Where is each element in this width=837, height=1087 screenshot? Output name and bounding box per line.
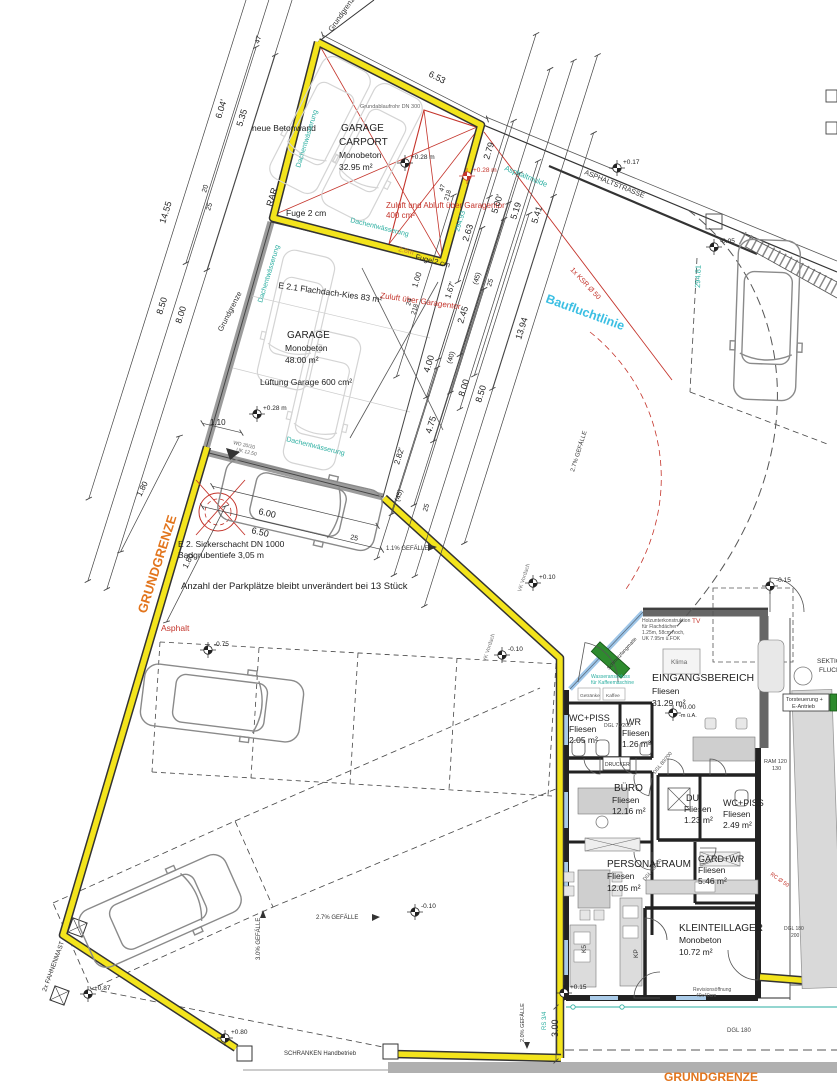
annotation-label: 200 — [791, 933, 800, 939]
door-arc — [668, 759, 684, 775]
annotation-label: Fliesen — [622, 728, 650, 738]
car-body — [74, 850, 245, 972]
annotation-label: Fliesen — [652, 686, 680, 696]
annotation-label: 40x40cm — [696, 993, 716, 999]
annotation-label: RAM 120 — [764, 759, 787, 765]
car-mirror — [193, 927, 203, 935]
plan-rect — [623, 926, 638, 938]
annotation-label: 1.00 — [410, 271, 423, 289]
level-marker: -0.10 — [494, 646, 523, 663]
annotation-label: 8.00 — [173, 305, 188, 325]
marker-quadrant — [415, 912, 419, 916]
annotation-label: 10.72 m² — [679, 947, 713, 957]
plan-rect — [574, 932, 590, 944]
plan-circle — [571, 1005, 575, 1009]
plan-rect — [826, 90, 837, 102]
annotation-label: WC+PISS — [723, 798, 764, 808]
annotation-label: 2.0% GEFÄLLE — [519, 1003, 526, 1042]
annotation-label: 25 — [422, 503, 431, 513]
annotation-label: BÜRO — [614, 782, 643, 794]
plan-rect-group — [388, 1062, 837, 1073]
annotation-label: KLEINTEILLAGER — [679, 923, 763, 934]
car-mirror — [286, 411, 292, 419]
annotation-label: 14.55 — [157, 200, 173, 224]
marker-label: +0.87 — [94, 985, 111, 992]
annotation-label: Asphaltmulde — [503, 164, 549, 189]
annotation-label: 1x KSR Ø 50 — [569, 267, 602, 302]
annotation-label: 5.46 m² — [698, 876, 727, 886]
annotation-label: 5.35 — [234, 108, 249, 128]
dimension-line — [492, 55, 597, 389]
plan-line — [233, 368, 410, 412]
plan-line — [273, 788, 558, 907]
annotation-label: (40) — [446, 351, 456, 365]
annotation-label: CARPORT — [339, 137, 388, 148]
plan-line — [91, 989, 388, 1048]
slope-arrow-icon — [372, 914, 380, 921]
annotation-label: Fliesen — [612, 795, 640, 805]
plan-line — [251, 648, 259, 778]
annotation-label: E-Antrieb — [792, 704, 815, 710]
marker-label: +0.28 m — [473, 167, 497, 174]
marker-sublabel: -m ü.A. — [679, 713, 697, 719]
annotation-label: Fliesen — [698, 865, 726, 875]
annotation-label: RC Ø 50 — [769, 872, 790, 889]
plan-rect-group — [564, 872, 574, 882]
annotation-label: 6.50 — [251, 525, 270, 539]
annotation-label: DGL 180 — [727, 1028, 751, 1034]
plan-rect-group — [594, 910, 604, 920]
car-windshield — [327, 487, 345, 539]
car-windshield — [740, 353, 792, 361]
annotation-label: 4.75 — [423, 415, 438, 435]
marker-quadrant — [204, 646, 208, 650]
plan-rect — [623, 906, 638, 918]
plan-circle — [794, 667, 812, 685]
car-mirror — [328, 475, 338, 482]
annotation-label: 13.94 — [513, 316, 529, 340]
marker-label: -0.75 — [214, 641, 229, 648]
slope-arrow-icon — [260, 910, 266, 918]
plan-rect-group — [585, 838, 640, 851]
car-cabin — [106, 871, 210, 952]
annotation-label: PERSONALRAUM — [607, 859, 691, 870]
marker-label: +0.10 — [539, 574, 556, 581]
annotation-label: Torsteuerung + — [786, 697, 823, 703]
plan-rect — [596, 740, 609, 756]
annotation-label: 400 cm² — [386, 211, 415, 220]
dashed-arc — [668, 210, 777, 636]
marker-quadrant — [770, 586, 774, 590]
marker-label: -0.10 — [508, 646, 523, 653]
annotation-label: 4.00 — [421, 354, 436, 374]
plan-line — [449, 658, 457, 790]
marker-quadrant — [502, 655, 506, 659]
site-plan-drawing: +0.28 m+0.28 m+0.28 m+0.17-0.05+0.10-0.1… — [0, 0, 837, 1087]
plan-rect-group — [826, 90, 837, 102]
annotation-label: 130 — [772, 766, 781, 772]
plan-rect-group — [50, 986, 69, 1005]
annotation-label: für Kaffeemaschine — [591, 680, 634, 686]
car-mirror — [313, 540, 323, 547]
marker-label: +0.15 — [570, 984, 587, 991]
annotation-label: Getränke — [580, 693, 600, 699]
dashed-arc — [590, 332, 661, 592]
dimension-line — [392, 228, 482, 514]
annotation-label: Dachentwässerung — [350, 217, 410, 238]
annotation-label: Klima — [671, 659, 688, 666]
annotation-label: 2.79 — [481, 141, 496, 161]
marker-quadrant — [766, 582, 770, 586]
marker-label: +0.28 m — [411, 154, 435, 161]
annotation-label: 25 — [205, 202, 214, 212]
plan-rect-group — [830, 694, 837, 711]
annotation-label: Fliesen — [607, 871, 635, 881]
plan-rect-group — [237, 1046, 252, 1061]
plan-rect — [693, 737, 755, 761]
annotation-label: GRUNDGRENZE — [664, 1070, 758, 1084]
annotation-label: SEKTIONALTOR — [817, 658, 837, 665]
car-mirror — [384, 181, 391, 190]
plan-rect — [758, 640, 784, 692]
plan-circle — [620, 1005, 624, 1009]
door-arc — [645, 918, 667, 940]
plan-circle — [596, 816, 608, 828]
plan-rect — [383, 1044, 398, 1059]
plan-line — [152, 642, 160, 772]
marker-quadrant — [257, 414, 261, 418]
annotation-label: Monobeton — [679, 935, 722, 945]
car — [728, 239, 806, 401]
annotation-label: Badgrubentiefe 3,05 m — [178, 550, 264, 560]
annotation-label: GARD+WR — [698, 854, 745, 864]
annotation-label: 47 — [254, 35, 263, 45]
plan-line — [152, 772, 552, 796]
marker-quadrant — [208, 650, 212, 654]
annotation-label: Zuluft und Abluft über Garagentor — [386, 201, 505, 210]
car-mirror — [342, 424, 348, 432]
annotation-label: 8.00 — [456, 378, 471, 398]
annotation-label: Monobeton — [285, 343, 328, 353]
annotation-label: E 2. Sickerschacht DN 1000 — [178, 539, 285, 549]
annotation-label: Grundgrenze — [326, 0, 358, 33]
annotation-label: GARAGE — [287, 330, 330, 341]
slope-arrow-icon — [524, 1042, 530, 1049]
plan-rect — [237, 1046, 252, 1061]
marker-quadrant — [710, 243, 714, 247]
plan-rect — [388, 1062, 837, 1073]
annotation-label: GARAGE — [341, 123, 384, 134]
marker-quadrant — [669, 709, 673, 713]
dimension-line — [89, 0, 263, 499]
plan-rect-group — [578, 870, 610, 908]
annotation-label: 3.0% GEFÄLLE — [255, 918, 262, 960]
car-cabin — [741, 271, 792, 365]
annotation-label: Dachentwässerung — [286, 436, 346, 457]
car-mirror — [165, 866, 175, 874]
plan-rect-group — [705, 718, 716, 729]
car-mirror — [239, 736, 249, 742]
plan-rect — [736, 718, 747, 729]
annotation-label: 6.00 — [258, 506, 277, 520]
marker-quadrant — [405, 163, 409, 167]
annotation-label: 3.00 — [550, 1019, 560, 1037]
marker-quadrant — [411, 908, 415, 912]
annotation-label: Grundablaufrohr DN 300 — [360, 104, 420, 110]
annotation-label: 48.00 m² — [285, 355, 319, 365]
annotation-label: 25 — [486, 278, 495, 288]
dimension-line — [394, 289, 484, 575]
plan-line — [486, 117, 837, 261]
annotation-label: Fuge 2 cm — [286, 208, 326, 218]
marker-label: +0.28 m — [263, 405, 287, 412]
car-mirror — [797, 343, 802, 352]
car — [138, 658, 306, 749]
plan-rect — [578, 870, 610, 908]
level-marker: -0.10 — [407, 903, 436, 920]
annotation-label: 1.26 m² — [622, 739, 651, 749]
marker-quadrant — [529, 579, 533, 583]
annotation-label: 2.05 m² — [569, 735, 598, 745]
plan-rect — [830, 694, 837, 711]
annotation-label: KP — [633, 949, 640, 958]
plan-rect — [594, 910, 604, 920]
annotation-label: DGL 70/200 — [604, 723, 631, 729]
annotation-label: DU — [686, 793, 699, 803]
marker-quadrant — [467, 176, 471, 180]
plan-rect-group — [564, 886, 574, 896]
dimension-line — [464, 133, 593, 543]
plan-line — [742, 238, 837, 289]
marker-quadrant — [88, 994, 92, 998]
plan-rect-group — [758, 640, 784, 692]
annotation-label: Lüftung Garage 600 cm² — [260, 377, 352, 387]
annotation-label: RS 3/4 — [542, 1011, 548, 1030]
annotation-label: 1.23 m² — [684, 815, 713, 825]
plan-rect — [564, 886, 574, 896]
car-body — [139, 662, 305, 743]
annotation-label: E 2.1 Flachdach-Kies 83 m² — [278, 280, 383, 305]
plan-line — [235, 688, 540, 821]
annotation-label: Fliesen — [684, 804, 712, 814]
marker-label: +0.80 — [231, 1029, 248, 1036]
plan-rect — [564, 872, 574, 882]
door-arc — [710, 759, 726, 775]
annotation-label: Kaffee — [606, 693, 620, 699]
annotation-label: EINGANGSBEREICH — [652, 672, 754, 684]
annotation-label: 5.41 — [529, 205, 544, 225]
annotation-label: Fliesen — [569, 724, 597, 734]
car-mirror — [248, 670, 258, 676]
annotation-label: 2.7% GEFÄLLE — [316, 914, 358, 921]
annotation-label: Anzahl der Parkplätze bleibt unverändert… — [181, 581, 408, 592]
plan-rect — [580, 910, 590, 920]
marker-quadrant — [253, 410, 257, 414]
level-marker: +0.28 m — [249, 405, 287, 422]
annotation-label: (45) — [394, 489, 404, 503]
plan-rect-group — [623, 906, 638, 918]
dimension-line — [415, 214, 529, 576]
plan-rect-group — [826, 122, 837, 134]
marker-label: +0.17 — [623, 159, 640, 166]
car-windshield — [293, 423, 337, 438]
car — [251, 247, 341, 393]
annotation-label: 6.04' — [213, 98, 228, 120]
annotation-label: 294.81 — [693, 265, 703, 288]
annotation-label: Fliesen — [723, 809, 751, 819]
marker-label: -0.05 — [720, 238, 735, 245]
site-plan: +0.28 m+0.28 m+0.28 m+0.17-0.05+0.10-0.1… — [0, 0, 837, 1087]
plan-rect — [705, 718, 716, 729]
annotation-label: 31.29 m² — [652, 698, 686, 708]
car-mirror — [260, 331, 266, 339]
plan-rect-group — [623, 926, 638, 938]
marker-label: -0.10 — [421, 903, 436, 910]
annotation-label: VK Vordach — [482, 633, 496, 663]
annotation-label: WC+PISS — [569, 713, 610, 723]
plan-rect-group — [580, 910, 590, 920]
door-arc — [728, 950, 758, 980]
marker-quadrant — [463, 172, 467, 176]
level-marker: -0.75 — [200, 641, 229, 658]
annotation-label: 8.50 — [154, 296, 169, 316]
level-marker: -0.15 — [762, 577, 791, 594]
annotation-label: VK Vordach — [517, 563, 531, 593]
plan-rect — [826, 122, 837, 134]
plan-line — [362, 268, 443, 430]
plan-rect-group — [693, 737, 755, 761]
plan-line — [548, 664, 556, 796]
annotation-label: 2.82' — [392, 446, 406, 465]
annotation-label: TV — [692, 618, 701, 625]
annotation-label: 12.05 m² — [607, 883, 641, 893]
level-marker: +0.28 m — [397, 154, 435, 171]
plan-rect-group — [792, 689, 837, 988]
annotation-label: 2.7% GEFÄLLE — [569, 430, 588, 473]
annotation-label: 1.67' — [443, 280, 457, 299]
annotation-label: 1.10 — [210, 418, 226, 427]
annotation-label: FLUCHTTÜR — [819, 666, 837, 674]
dimension-line — [396, 195, 453, 376]
marker-quadrant — [613, 164, 617, 168]
marker-quadrant — [714, 247, 718, 251]
plan-rect-group — [596, 740, 609, 756]
annotation-label: DGL 180 — [784, 926, 804, 932]
plan-rect-group — [574, 932, 590, 944]
annotation-label: 6.53 — [427, 69, 447, 86]
annotation-label: SCHRANKEN Handbetrieb — [284, 1051, 357, 1057]
marker-label: -0.15 — [776, 577, 791, 584]
plan-rect-group — [383, 1044, 398, 1059]
annotation-label: 12.16 m² — [612, 806, 646, 816]
annotation-label: 32.95 m² — [339, 162, 373, 172]
plan-rect-group — [736, 718, 747, 729]
marker-quadrant — [673, 713, 677, 717]
dimension-line — [377, 368, 437, 559]
annotation-label: 25 — [350, 534, 359, 543]
annotation-label: Baufluchtlinie — [544, 292, 626, 333]
annotation-label: 1.80 — [135, 479, 150, 497]
car-mirror — [730, 341, 735, 350]
annotation-label: 2x FAHNENMAST — [41, 940, 66, 992]
marker-quadrant — [617, 168, 621, 172]
annotation-label: 20 — [201, 184, 210, 194]
annotation-label: 8.50 — [473, 384, 488, 404]
plan-line — [350, 653, 358, 784]
annotation-label: 1.1% GEFÄLLE — [386, 545, 428, 552]
annotation-label: DRUCKER — [605, 762, 630, 768]
annotation-label: 5.19 — [508, 201, 523, 221]
level-marker: +0.10 — [525, 574, 556, 591]
marker-quadrant — [533, 583, 537, 587]
annotation-label: Asphalt — [161, 623, 190, 633]
annotation-label: (45) — [472, 272, 482, 286]
annotation-label: UK 7.95m ü.FOK — [642, 636, 681, 642]
plan-rect — [792, 689, 837, 988]
annotation-label: K5 — [581, 945, 588, 953]
annotation-label: Monobeton — [339, 150, 382, 160]
annotation-label: DGL 80/200 — [652, 751, 674, 776]
annotation-label: 2.49 m² — [723, 820, 752, 830]
marker-quadrant — [498, 651, 502, 655]
marker-quadrant — [84, 990, 88, 994]
level-marker: +0.87 — [80, 985, 111, 1002]
